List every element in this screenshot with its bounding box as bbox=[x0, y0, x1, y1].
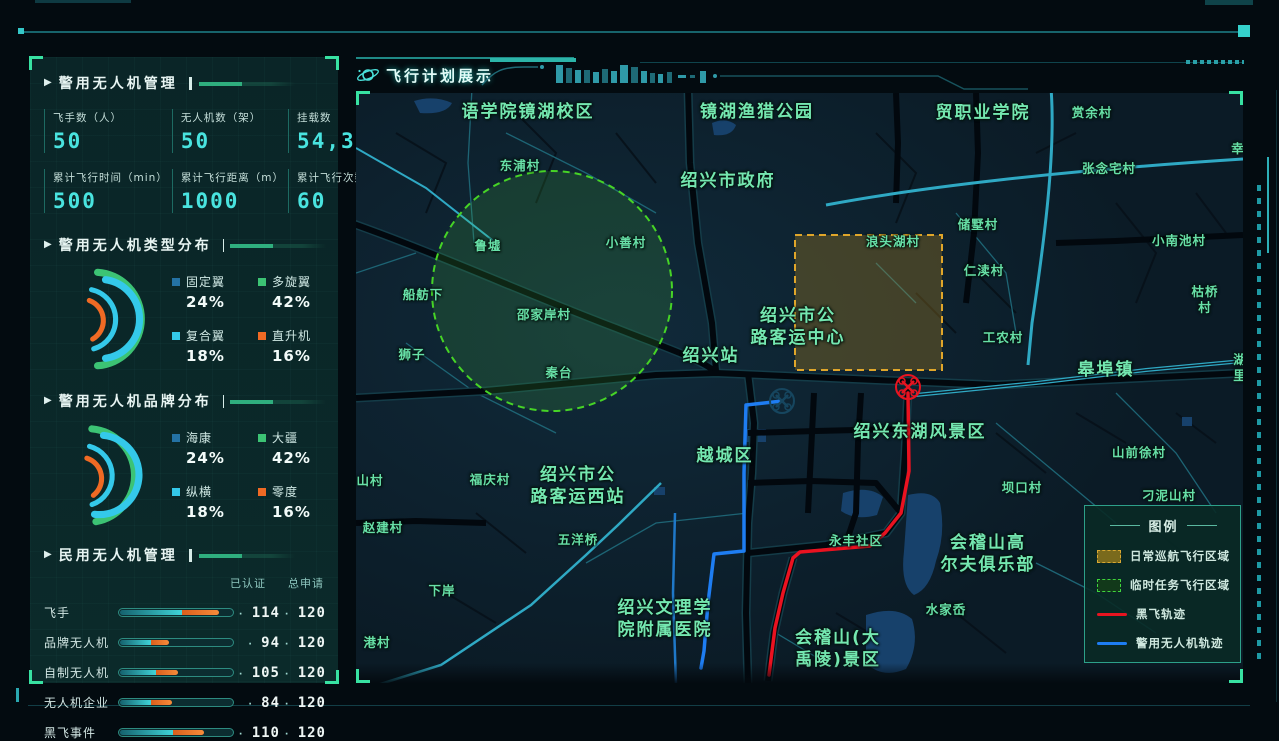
legend-percent: 42% bbox=[272, 449, 326, 467]
bottom-left-tick bbox=[16, 688, 19, 702]
certified-value: 105 bbox=[234, 665, 280, 681]
legend-percent: 42% bbox=[272, 293, 326, 311]
stat-cell: 飞手数（人）50 bbox=[44, 109, 172, 153]
civil-row-label: 自制无人机 bbox=[44, 664, 118, 681]
top-line-right-square bbox=[1238, 25, 1250, 37]
legend-item-label: 日常巡航飞行区域 bbox=[1130, 548, 1230, 564]
sidebar-corner-tl bbox=[29, 56, 43, 70]
certified-value: 110 bbox=[234, 725, 280, 741]
legend-swatch bbox=[258, 332, 266, 340]
section-arrow-icon: ▶ bbox=[44, 78, 52, 88]
stat-cell: 累计飞行距离（m）1000 bbox=[172, 169, 288, 213]
stat-label: 累计飞行时间（min） bbox=[53, 170, 168, 185]
top-left-bar bbox=[35, 0, 131, 3]
planet-orbit-icon bbox=[356, 63, 380, 87]
flight-plan-panel: 飞行计划展示 bbox=[356, 57, 1243, 683]
map-legend-item: 临时任务飞行区域 bbox=[1097, 577, 1230, 593]
civil-row-label: 飞手 bbox=[44, 604, 118, 621]
progress-bar bbox=[118, 698, 234, 707]
stat-value: 500 bbox=[53, 189, 168, 213]
legend-item: 海康24% bbox=[172, 429, 240, 467]
right-edge-rail bbox=[1276, 90, 1277, 702]
map-corner-bl bbox=[356, 669, 370, 683]
section-arrow-icon: ▶ bbox=[44, 396, 52, 406]
section-arrow-icon: ▶ bbox=[44, 240, 52, 250]
legend-item: 零度16% bbox=[258, 483, 326, 521]
legend-item-label: 警用无人机轨迹 bbox=[1136, 635, 1224, 651]
section-police-drone-management: ▶ 警用无人机管理 bbox=[44, 73, 326, 93]
stat-label: 累计飞行距离（m） bbox=[181, 170, 284, 185]
top-line-left-square bbox=[18, 28, 24, 34]
sidebar: ▶ 警用无人机管理 飞手数（人）50无人机数（架）50挂载数54,324累计飞行… bbox=[30, 57, 338, 683]
legend-percent: 24% bbox=[186, 293, 240, 311]
map-corner-br bbox=[1229, 669, 1243, 683]
legend-dash bbox=[1110, 525, 1140, 526]
column-certified: 已认证 bbox=[230, 575, 266, 591]
civil-row: 自制无人机105120 bbox=[44, 664, 326, 681]
legend-label: 纵横 bbox=[186, 483, 212, 500]
legend-label: 固定翼 bbox=[186, 273, 225, 290]
legend-label: 多旋翼 bbox=[272, 273, 311, 290]
legend-percent: 16% bbox=[272, 347, 326, 365]
section-drone-type-distribution: ▶ 警用无人机类型分布 bbox=[44, 235, 326, 255]
title-underline bbox=[199, 82, 295, 86]
section-title: 民用无人机管理 bbox=[59, 545, 178, 565]
civil-row-label: 黑飞事件 bbox=[44, 724, 118, 741]
total-value: 120 bbox=[280, 665, 326, 681]
total-value: 120 bbox=[280, 605, 326, 621]
right-dashed-scroll-deco bbox=[1257, 185, 1261, 660]
legend-label: 直升机 bbox=[272, 327, 311, 344]
title-tick bbox=[189, 77, 192, 90]
stat-value: 1000 bbox=[181, 189, 284, 213]
section-title: 警用无人机管理 bbox=[59, 73, 178, 93]
title-underline bbox=[230, 244, 326, 248]
civil-column-headers: 已认证 总申请 bbox=[44, 575, 324, 591]
legend-label: 复合翼 bbox=[186, 327, 225, 344]
civil-row: 品牌无人机94120 bbox=[44, 634, 326, 651]
bar-pending-fill bbox=[151, 640, 169, 645]
legend-swatch bbox=[258, 434, 266, 442]
civil-row: 飞手114120 bbox=[44, 604, 326, 621]
title-underline bbox=[199, 554, 295, 558]
legend-area-swatch bbox=[1097, 579, 1121, 592]
total-value: 120 bbox=[280, 635, 326, 651]
bar-certified-fill bbox=[120, 640, 151, 645]
sidebar-corner-tr bbox=[325, 56, 339, 70]
legend-percent: 16% bbox=[272, 503, 326, 521]
section-drone-brand-distribution: ▶ 警用无人机品牌分布 bbox=[44, 391, 326, 411]
map-corner-tr bbox=[1229, 91, 1243, 105]
map-legend-item: 警用无人机轨迹 bbox=[1097, 635, 1230, 651]
legend-percent: 24% bbox=[186, 449, 240, 467]
legend-swatch bbox=[172, 434, 180, 442]
legend-line-swatch bbox=[1097, 642, 1127, 645]
bar-certified-fill bbox=[120, 700, 151, 705]
civil-row: 无人机企业84120 bbox=[44, 694, 326, 711]
stat-cell: 无人机数（架）50 bbox=[172, 109, 288, 153]
legend-item: 多旋翼42% bbox=[258, 273, 326, 311]
certified-value: 94 bbox=[234, 635, 280, 651]
map-header: 飞行计划展示 bbox=[356, 57, 1243, 93]
title-underline bbox=[230, 400, 326, 404]
section-title: 警用无人机品牌分布 bbox=[59, 391, 212, 411]
total-value: 120 bbox=[280, 695, 326, 711]
legend-line-swatch bbox=[1097, 613, 1127, 616]
total-value: 120 bbox=[280, 725, 326, 741]
bar-pending-fill bbox=[156, 670, 178, 675]
legend-swatch bbox=[172, 278, 180, 286]
legend-label: 海康 bbox=[186, 429, 212, 446]
legend-item: 固定翼24% bbox=[172, 273, 240, 311]
progress-bar bbox=[118, 668, 234, 677]
legend-swatch bbox=[172, 332, 180, 340]
progress-bar bbox=[118, 638, 234, 647]
top-right-bar bbox=[1205, 0, 1253, 5]
section-title: 警用无人机类型分布 bbox=[59, 235, 212, 255]
bar-pending-fill bbox=[151, 700, 171, 705]
stats-grid: 飞手数（人）50无人机数（架）50挂载数54,324累计飞行时间（min）500… bbox=[44, 109, 326, 213]
bar-pending-fill bbox=[173, 730, 204, 735]
sidebar-corner-bl bbox=[29, 670, 43, 684]
stat-value: 50 bbox=[181, 129, 284, 153]
bar-certified-fill bbox=[120, 670, 156, 675]
legend-item: 大疆42% bbox=[258, 429, 326, 467]
temp-mission-zone bbox=[432, 171, 672, 411]
legend-swatch bbox=[258, 278, 266, 286]
stat-value: 50 bbox=[53, 129, 168, 153]
bar-certified-fill bbox=[120, 730, 173, 735]
section-arrow-icon: ▶ bbox=[44, 550, 52, 560]
top-divider-line bbox=[21, 31, 1247, 33]
progress-bar bbox=[118, 608, 234, 617]
legend-title: 图例 bbox=[1148, 516, 1178, 535]
type-donut-chart bbox=[44, 263, 156, 375]
brand-donut-legend: 海康24%大疆42%纵横18%零度16% bbox=[172, 429, 326, 521]
map-canvas[interactable]: 语学院镜湖校区镜湖渔猎公园贸职业学院赏余村幸东浦村绍兴市政府张念宅村储墅村小南池… bbox=[356, 93, 1243, 683]
legend-item: 直升机16% bbox=[258, 327, 326, 365]
legend-label: 大疆 bbox=[272, 429, 298, 446]
certified-value: 114 bbox=[234, 605, 280, 621]
type-donut-legend: 固定翼24%多旋翼42%复合翼18%直升机16% bbox=[172, 273, 326, 365]
map-bottom-fade bbox=[356, 663, 1243, 683]
section-civil-drone-management: ▶ 民用无人机管理 bbox=[44, 545, 326, 565]
legend-item-label: 临时任务飞行区域 bbox=[1130, 577, 1230, 593]
title-tick bbox=[189, 549, 192, 562]
map-legend: 图例 日常巡航飞行区域临时任务飞行区域黑飞轨迹警用无人机轨迹 bbox=[1084, 505, 1241, 663]
brand-donut-chart bbox=[44, 419, 156, 531]
legend-percent: 18% bbox=[186, 503, 240, 521]
certified-value: 84 bbox=[234, 695, 280, 711]
legend-dash bbox=[1187, 525, 1217, 526]
type-distribution-chart-row: 固定翼24%多旋翼42%复合翼18%直升机16% bbox=[44, 263, 326, 375]
civil-row-label: 品牌无人机 bbox=[44, 634, 118, 651]
column-total: 总申请 bbox=[288, 575, 324, 591]
legend-area-swatch bbox=[1097, 550, 1121, 563]
legend-label: 零度 bbox=[272, 483, 298, 500]
header-decoration bbox=[468, 59, 1108, 91]
stat-cell: 累计飞行时间（min）500 bbox=[44, 169, 172, 213]
legend-swatch bbox=[258, 488, 266, 496]
right-scroll-thumb-deco bbox=[1267, 157, 1269, 253]
map-legend-item: 日常巡航飞行区域 bbox=[1097, 548, 1230, 564]
map-legend-item: 黑飞轨迹 bbox=[1097, 606, 1230, 622]
stat-label: 飞手数（人） bbox=[53, 110, 168, 125]
legend-item-label: 黑飞轨迹 bbox=[1136, 606, 1186, 622]
civil-row-label: 无人机企业 bbox=[44, 694, 118, 711]
legend-percent: 18% bbox=[186, 347, 240, 365]
bar-certified-fill bbox=[120, 610, 182, 615]
brand-distribution-chart-row: 海康24%大疆42%纵横18%零度16% bbox=[44, 419, 326, 531]
progress-bar bbox=[118, 728, 234, 737]
civil-row: 黑飞事件110120 bbox=[44, 724, 326, 741]
legend-item: 纵横18% bbox=[172, 483, 240, 521]
stat-label: 无人机数（架） bbox=[181, 110, 284, 125]
sidebar-corner-br bbox=[325, 670, 339, 684]
civil-rows: 飞手114120品牌无人机94120自制无人机105120无人机企业84120黑… bbox=[44, 604, 326, 741]
bar-pending-fill bbox=[182, 610, 219, 615]
legend-item: 复合翼18% bbox=[172, 327, 240, 365]
daily-cruise-zone bbox=[795, 235, 942, 370]
map-corner-tl bbox=[356, 91, 370, 105]
legend-swatch bbox=[172, 488, 180, 496]
